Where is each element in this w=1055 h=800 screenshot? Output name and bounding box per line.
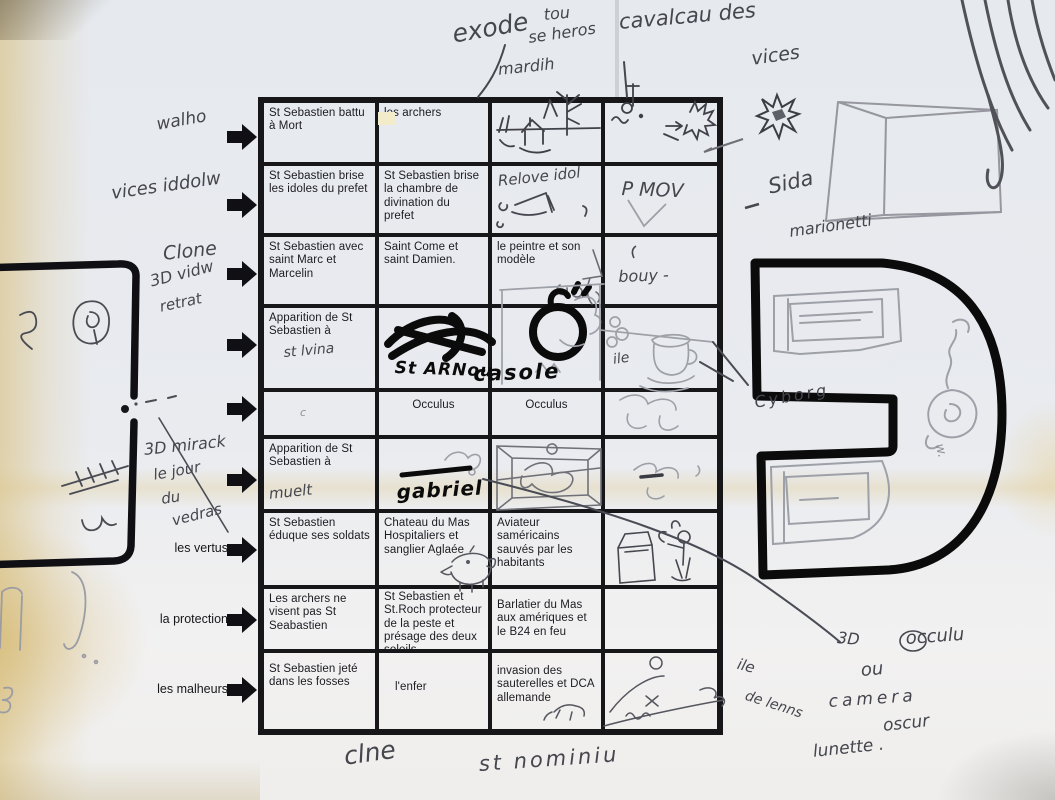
dot-mark [121,405,129,413]
vertical-stroke [624,62,627,97]
screen-sketch-bottom [771,461,889,544]
cell-text: Apparition de St Sebastien à [264,308,375,343]
photographed-storyboard-plan: St Sebastien battu à Mort les archers St… [0,0,1055,800]
table-cell-r7c1: St Sebastien éduque ses soldats [262,511,377,587]
cell-hw-r4c4: ile [612,350,630,368]
cell-text: le peintre et son modèle [492,237,601,272]
bottom-left-doodles [0,572,97,713]
table-cell-r9c3: invasion des sauterelles et DCA allemand… [490,651,603,731]
dashes [146,396,176,402]
cell-text: St Sebastien avec saint Marc et Marcelin [264,237,375,285]
box-perspective-lines [826,102,1001,221]
left-bracket-bottom [0,422,134,565]
table-cell-r7c4 [603,511,719,587]
screen-sketch-bottom-inner [784,472,869,542]
corner-shadow-topleft [0,0,150,40]
row-arrows [227,124,257,703]
arrow-icon [227,261,257,287]
annotation-ou: ou [860,658,884,681]
annotation-clne: clne [342,735,397,771]
cell-hw-r5c1: c [300,406,306,419]
curtain-stroke [1008,0,1048,108]
annotation-exode: exode [450,7,531,49]
cell-hw-r2c4: P MOV [621,178,684,202]
annotation-cavalcade: cavalcau des [618,0,757,34]
perspective-box-sketch [826,102,1001,221]
arrow-icon [227,607,257,633]
squiggle-sketch [20,312,36,349]
table-cell-r8c4 [603,587,719,651]
u-squiggle-sketch [82,518,116,530]
annotation-3d: 3D [836,628,860,649]
table-cell-r3c2: Saint Come et saint Damien. [377,235,490,306]
table-cell-r3c3: le peintre et son modèle [490,235,603,306]
cell-text: Saint Come et saint Damien. [379,237,488,272]
whiteout-patch [378,112,395,125]
jar-sketch [0,588,22,650]
table-cell-r4c4 [603,306,719,390]
star-center [772,109,786,121]
curtain-stroke [985,0,1030,130]
cell-text: St Sebastien jeté dans les fosses [264,653,375,694]
cell-text: St Sebastien éduque ses soldats [264,513,375,548]
annotation-mardih: mardih [497,54,555,79]
cell-text: Les archers ne visent pas St Seabastien [264,589,375,637]
table-cell-r1c4 [603,101,719,164]
annotation-oscur: oscur [882,711,930,736]
paper-stain-left [0,0,90,800]
star-burst-sketch [757,95,799,138]
row-label-r5-line2: le jour [152,458,202,484]
cell-text: Occulus [379,392,488,416]
ear-sketch [73,301,109,343]
table-cell-r1c3 [490,101,603,164]
annotation-marionette: marionetti [788,210,873,240]
cell-text: Occulus [492,392,601,416]
cell-text: St Sebastien brise les idoles du prefet [264,166,375,201]
annotation-sida: Sida [766,166,815,199]
curve-sketch [64,572,86,649]
annotation-cyborg: Cyborg [753,380,830,412]
row-label-les-vertus: les vertus [140,541,228,555]
table-cell-r7c3: Aviateur saméricains sauvés par les habi… [490,511,603,587]
table-cell-r8c2: St Sebastien et St.Roch protecteur de la… [377,587,490,651]
arrow-icon [227,124,257,150]
three-mark-sketch [0,688,12,713]
table-cell-r5c2: Occulus [377,390,490,437]
row-label-r2: vices iddolw [110,168,222,204]
arrow-icon [227,192,257,218]
cell-text: l'enfer [379,653,488,698]
table-cell-r5c3: Occulus [490,390,603,437]
cell-text: Barlatier du Mas aux amériques et le B24… [492,589,601,643]
curtain-hook [987,95,1002,188]
row-label-la-protection: la protection [118,612,228,626]
table-cell-r3c1: St Sebastien avec saint Marc et Marcelin [262,235,377,306]
screen-sketch-top [774,289,901,354]
screen-panel-sketches [771,289,976,544]
table-cell-r9c4 [603,651,719,731]
cell-text: Chateau du Mas Hospitaliers et sanglier … [379,513,488,561]
cell-text: Apparition de St Sebastien à [264,439,375,474]
paper-stain-left-lower [0,520,150,760]
left-bracket-shape [0,264,136,565]
annotation-heros: se heros [527,19,597,47]
right-bracket-shape [755,263,1002,575]
cell-text: Aviateur saméricains sauvés par les habi… [492,513,601,574]
cell-text: St Sebastien battu à Mort [264,103,375,138]
arrow-icon [227,467,257,493]
dot [95,661,98,664]
table-cell-r6c3 [490,437,603,511]
annotation-de-lenns: de lenns [743,688,805,722]
annotation-vices: vices [750,41,801,70]
table-cell-r5c1 [262,390,377,437]
arrow-icon [227,677,257,703]
tally-marks-sketch [62,461,128,494]
dash-mark [745,204,759,208]
table-cell-r2c1: St Sebastien brise les idoles du prefet [262,164,377,235]
annotation-occulu: occulu [905,624,965,649]
row-label-les-malheurs: les malheurs [128,682,228,696]
table-cell-r2c2: St Sebastien brise la chambre de divinat… [377,164,490,235]
row-label-r1: walho [155,106,208,134]
ear-sketch-inner [87,312,99,344]
table-cell-r8c1: Les archers ne visent pas St Seabastien [262,587,377,651]
row-label-r5-line3: du [160,487,181,507]
corner-shadow-bottomleft [0,760,260,800]
annotation-ile: ile [735,655,757,677]
table-cell-r5c4 [603,390,719,437]
arrow-icon [227,537,257,563]
curtain-stroke [962,0,1012,150]
curtain-stroke [1032,0,1055,80]
cell-text: invasion des sauterelles et DCA allemand… [492,653,601,709]
arrow-icon [227,396,257,422]
row-label-r5-line1: 3D mirack [143,431,227,458]
table-cell-r1c1: St Sebastien battu à Mort [262,101,377,164]
arrow-icon [227,332,257,358]
corner-shadow-bottomright [935,730,1055,800]
rose-scribble-sketch [926,320,977,449]
cell-text: St Sebastien brise la chambre de divinat… [379,166,488,227]
left-bracket-top [0,264,136,396]
dot [83,655,86,658]
screen-sketch-top-inner [788,299,883,350]
cell-hw-r4c3: casole [473,359,561,386]
dot [134,402,137,405]
box-front [884,110,1001,215]
annotation-w: w. [932,442,950,459]
left-shape-doodles [20,301,128,530]
table-cell-r8c3: Barlatier du Mas aux amériques et le B24… [490,587,603,651]
table-cell-r6c4 [603,437,719,511]
cell-hw-r3c4: bouy - [618,265,669,286]
annotation-st-nominiu: st nominiu [478,742,620,776]
annotation-tou: tou [543,3,571,24]
annotation-lunette: lunette . [812,735,885,762]
cell-hw-r6c2: gabriel [396,475,483,503]
table-cell-r1c2: les archers [377,101,490,164]
cell-text: les archers [379,103,488,124]
curtain-strokes-sketch [962,0,1055,188]
row-label-r3-line3: retrat [158,289,203,315]
paper-stain-right [995,400,1055,540]
annotation-camera: camera [828,686,917,712]
table-cell-r7c2: Chateau du Mas Hospitaliers et sanglier … [377,511,490,587]
table-cell-r9c2: l'enfer [377,651,490,731]
table-cell-r9c1: St Sebastien jeté dans les fosses [262,651,377,731]
star-outline [757,95,799,138]
